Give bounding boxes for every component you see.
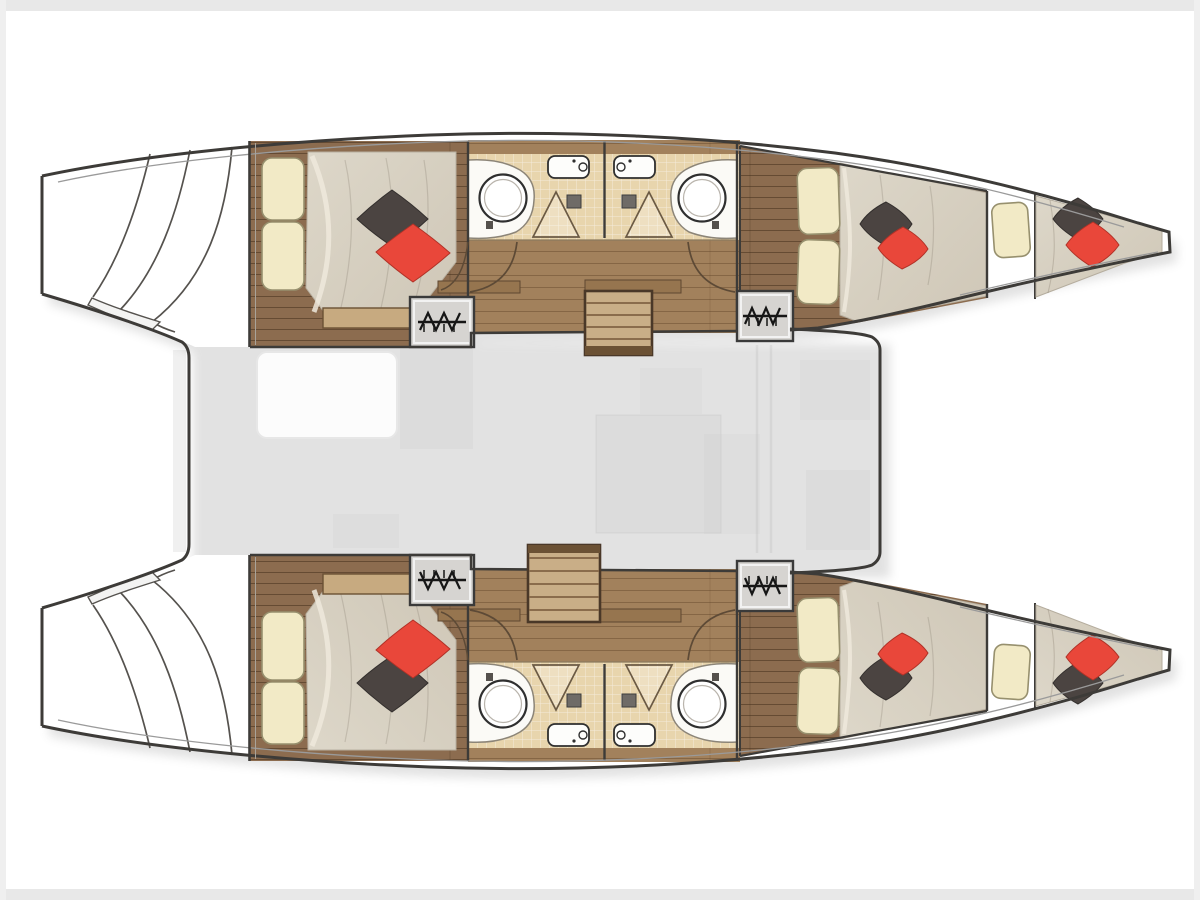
pillow-cream <box>991 202 1031 258</box>
bathtub <box>548 156 589 178</box>
toilet-glyph <box>567 195 581 208</box>
catamaran-floor-plan <box>0 0 1200 900</box>
floor-plan-svg <box>0 0 1200 900</box>
cockpit-table <box>257 352 397 438</box>
bathtub <box>614 156 655 178</box>
sink-basin <box>480 175 527 222</box>
pillow-cream <box>797 239 840 304</box>
pillow-cream <box>262 222 304 290</box>
pillow-cream <box>262 158 304 220</box>
pillow-cream <box>797 167 840 234</box>
toilet-glyph <box>622 195 636 208</box>
stairs-port <box>585 291 652 355</box>
hatch-icon <box>410 297 474 347</box>
sink-basin <box>679 175 726 222</box>
hatch-icon <box>737 291 793 341</box>
stairs-starboard <box>528 545 600 622</box>
